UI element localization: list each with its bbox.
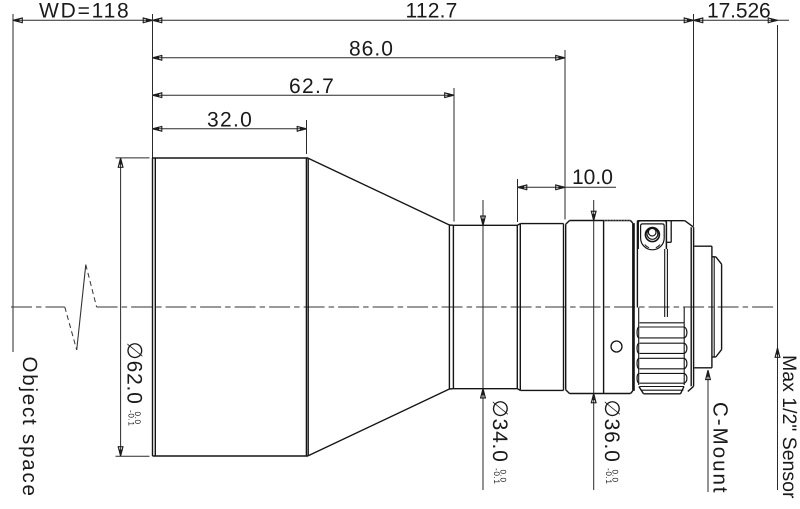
svg-text:C-Mount: C-Mount	[709, 402, 732, 495]
svg-text:10.0: 10.0	[572, 166, 613, 189]
svg-text:112.7: 112.7	[406, 0, 458, 23]
svg-text:Max 1/2" Sensor: Max 1/2" Sensor	[778, 355, 800, 499]
svg-text:32.0: 32.0	[207, 109, 253, 132]
svg-text:WD=118: WD=118	[39, 0, 131, 23]
svg-text:Object space: Object space	[18, 357, 41, 498]
svg-text:86.0: 86.0	[349, 38, 394, 61]
svg-text:62.7: 62.7	[289, 75, 335, 98]
svg-text:17.526: 17.526	[707, 0, 771, 23]
